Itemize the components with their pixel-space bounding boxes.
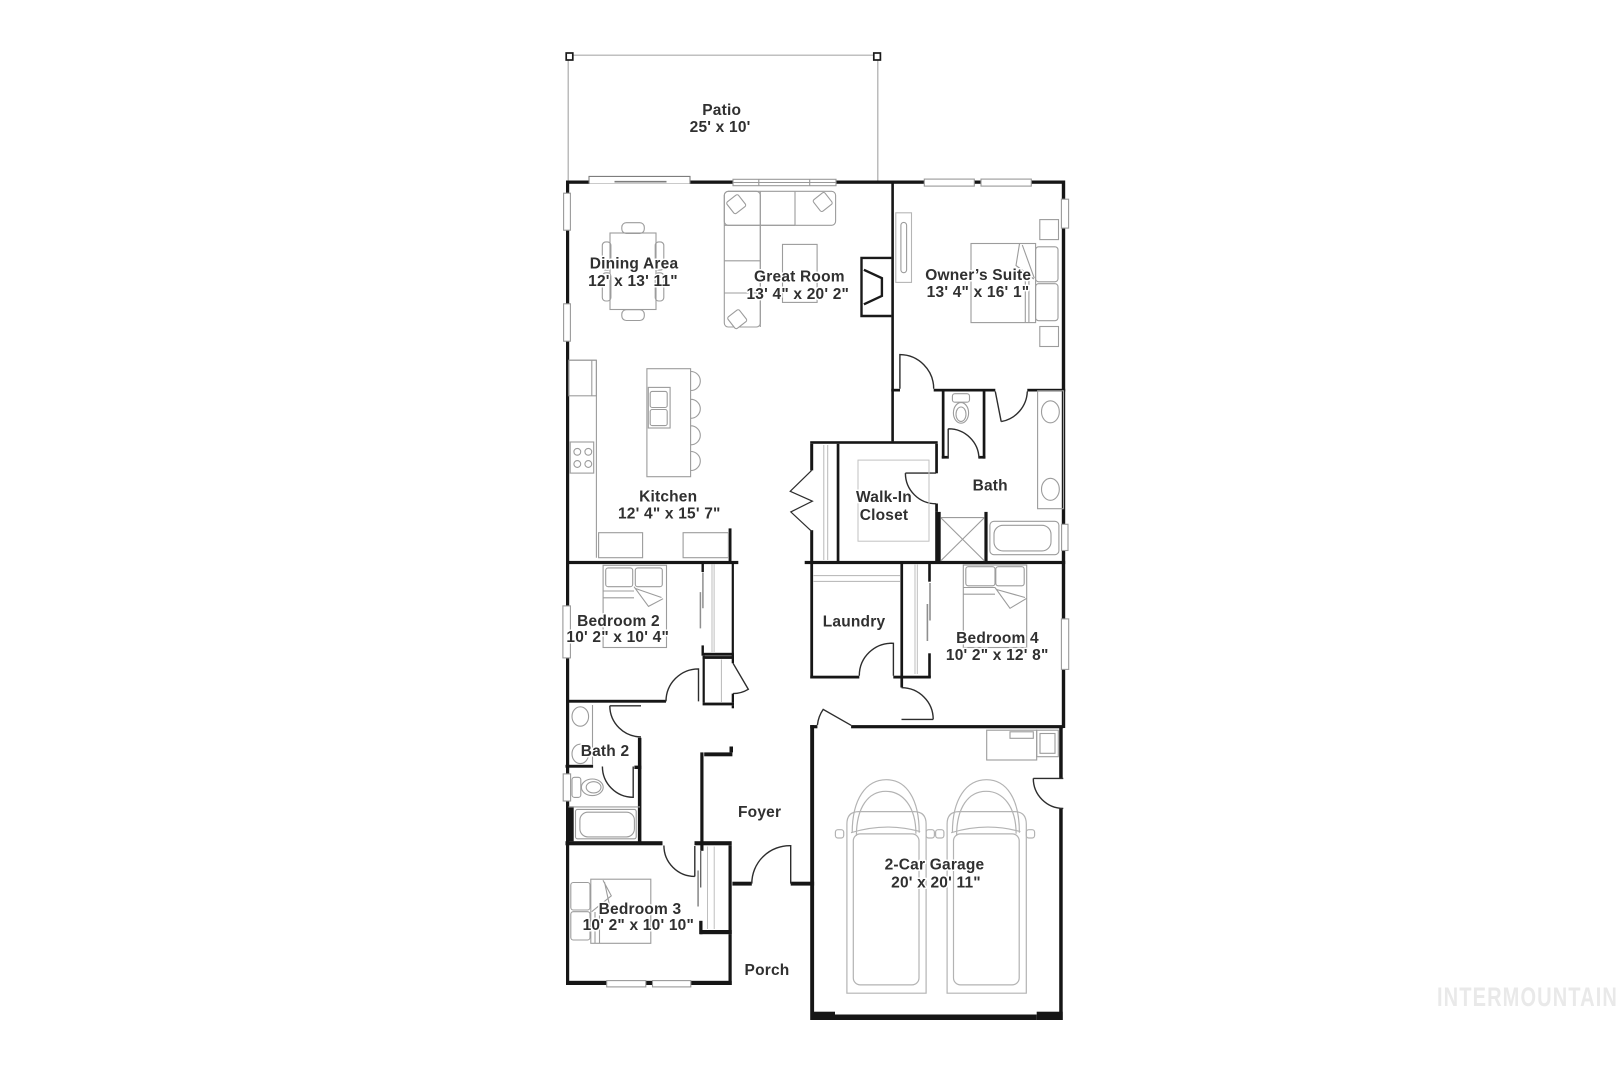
svg-text:13' 4" x 20' 2": 13' 4" x 20' 2" — [746, 286, 849, 303]
svg-text:Bedroom 2: Bedroom 2 — [577, 613, 660, 630]
svg-text:INTERMOUNTAIN: INTERMOUNTAIN — [1437, 982, 1618, 1012]
svg-text:Great Room: Great Room — [754, 269, 845, 286]
svg-text:Dining Area: Dining Area — [590, 256, 679, 273]
svg-text:10' 2" x 10' 4": 10' 2" x 10' 4" — [566, 629, 669, 646]
svg-text:Closet: Closet — [860, 507, 909, 524]
svg-text:Bedroom 3: Bedroom 3 — [599, 901, 682, 918]
svg-text:Kitchen: Kitchen — [639, 489, 697, 506]
svg-text:12' x 13' 11": 12' x 13' 11" — [588, 273, 678, 290]
svg-text:Bath: Bath — [973, 478, 1008, 495]
svg-text:Patio: Patio — [702, 102, 741, 119]
svg-text:Walk-In: Walk-In — [856, 489, 912, 506]
svg-text:10' 2" x 12' 8": 10' 2" x 12' 8" — [946, 647, 1049, 664]
svg-text:10' 2" x 10' 10": 10' 2" x 10' 10" — [583, 917, 694, 934]
svg-text:13' 4" x 16' 1": 13' 4" x 16' 1" — [927, 284, 1030, 301]
svg-text:Bedroom 4: Bedroom 4 — [956, 630, 1039, 647]
svg-text:25' x 10': 25' x 10' — [690, 119, 751, 136]
svg-text:Bath 2: Bath 2 — [581, 743, 630, 760]
svg-text:20' x 20' 11": 20' x 20' 11" — [891, 875, 981, 892]
svg-text:Foyer: Foyer — [738, 804, 781, 821]
svg-text:Laundry: Laundry — [823, 614, 886, 631]
svg-text:12' 4" x 15' 7": 12' 4" x 15' 7" — [618, 506, 721, 523]
svg-text:2-Car Garage: 2-Car Garage — [885, 857, 985, 874]
svg-text:Porch: Porch — [745, 962, 790, 979]
svg-text:Owner’s Suite: Owner’s Suite — [925, 267, 1031, 284]
